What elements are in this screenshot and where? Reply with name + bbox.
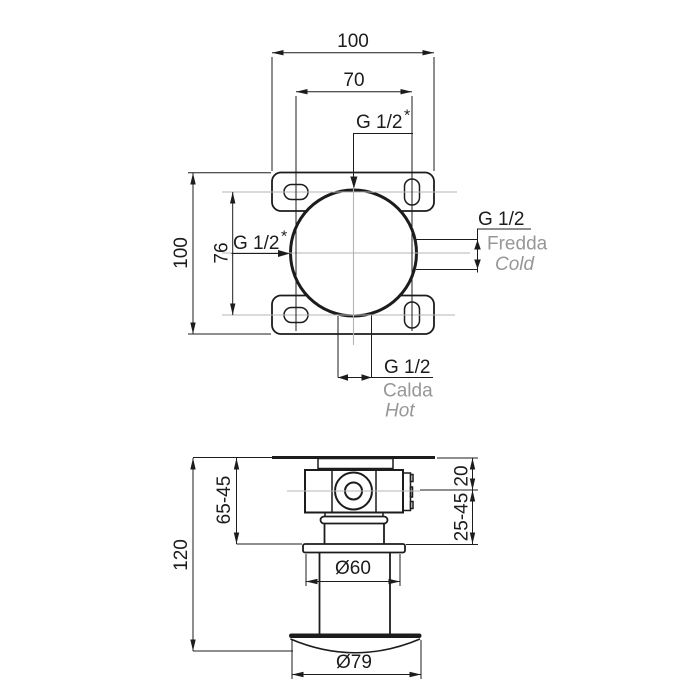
arrowhead-hot-right [362, 374, 372, 381]
top-view: 100 70 100 76 G 1/2 * G 1/2 * G 1/2 Fred… [171, 31, 548, 422]
dim-text-plate-width: 100 [337, 31, 369, 52]
dim-text-hole-spacing-h: 70 [343, 70, 364, 91]
dim-text-plate-height: 100 [171, 237, 192, 269]
arrowhead-inlet-left [278, 250, 290, 257]
dim-text-rough-in-depth: 65-45 [214, 476, 235, 525]
flange [303, 544, 405, 553]
label-cold-size: G 1/2 [478, 209, 524, 230]
dim-text-total-depth: 120 [171, 539, 192, 571]
label-inlet-left: G 1/2 [233, 233, 279, 254]
arrowhead-cold-up [474, 240, 481, 250]
escutcheon-rim [289, 634, 422, 639]
side-view: 120 65-45 20 25-45 Ø60 Ø79 [171, 458, 478, 680]
label-hot-it: Calda [383, 381, 433, 402]
label-outlet-top-star: * [404, 108, 410, 125]
arrowhead-outlet-top [350, 177, 357, 189]
leader-outlet-top [354, 134, 414, 186]
label-inlet-left-star: * [281, 229, 287, 246]
dim-text-plate-offset: 20 [452, 465, 473, 486]
technical-drawing-page: 100 70 100 76 G 1/2 * G 1/2 * G 1/2 Fred… [0, 0, 700, 700]
dim-text-adjustment-range: 25-45 [452, 493, 473, 542]
plate-collar [318, 459, 393, 469]
label-hot-size: G 1/2 [384, 357, 430, 378]
label-cold-en: Cold [495, 254, 536, 275]
side-fitting-step-bottom [411, 502, 414, 509]
arrowhead-hot-left [338, 374, 348, 381]
side-fitting [403, 473, 411, 511]
side-fitting-step-top [411, 475, 414, 482]
arrowhead-cold-down [474, 260, 481, 270]
mixer-valve-technical-drawing: 100 70 100 76 G 1/2 * G 1/2 * G 1/2 Fred… [0, 0, 700, 700]
oring-collar [321, 517, 388, 524]
dim-text-flange-diameter: Ø60 [335, 558, 371, 579]
dim-text-escutcheon-diameter: Ø79 [336, 652, 372, 673]
side-fitting-step-middle [411, 487, 413, 497]
label-cold-it: Fredda [487, 234, 548, 255]
dim-text-hole-spacing-v: 76 [212, 242, 233, 263]
label-outlet-top: G 1/2 [356, 112, 402, 133]
escutcheon-dish-arc [291, 639, 421, 653]
label-hot-en: Hot [385, 401, 415, 422]
